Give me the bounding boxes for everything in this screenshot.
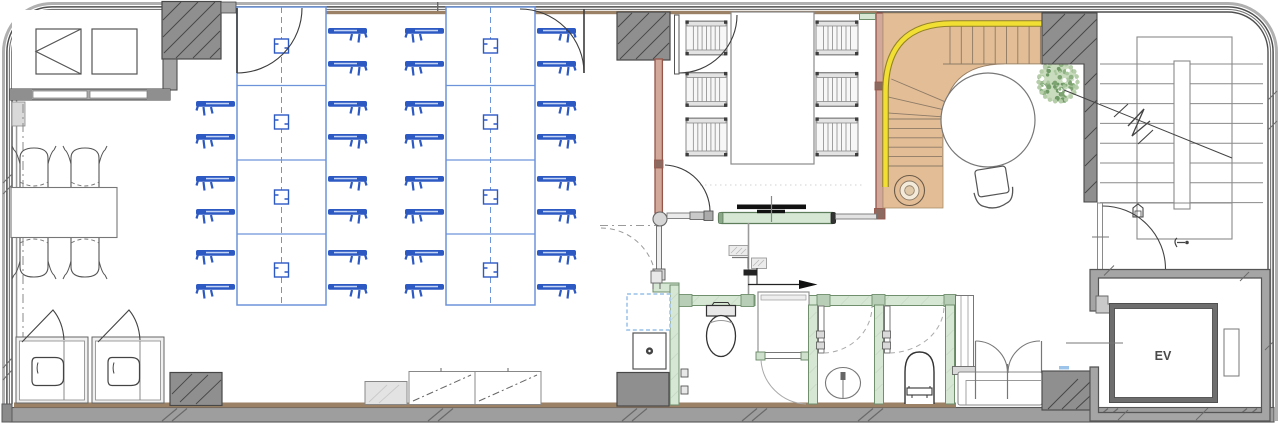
svg-text:EV: EV bbox=[1155, 349, 1172, 363]
